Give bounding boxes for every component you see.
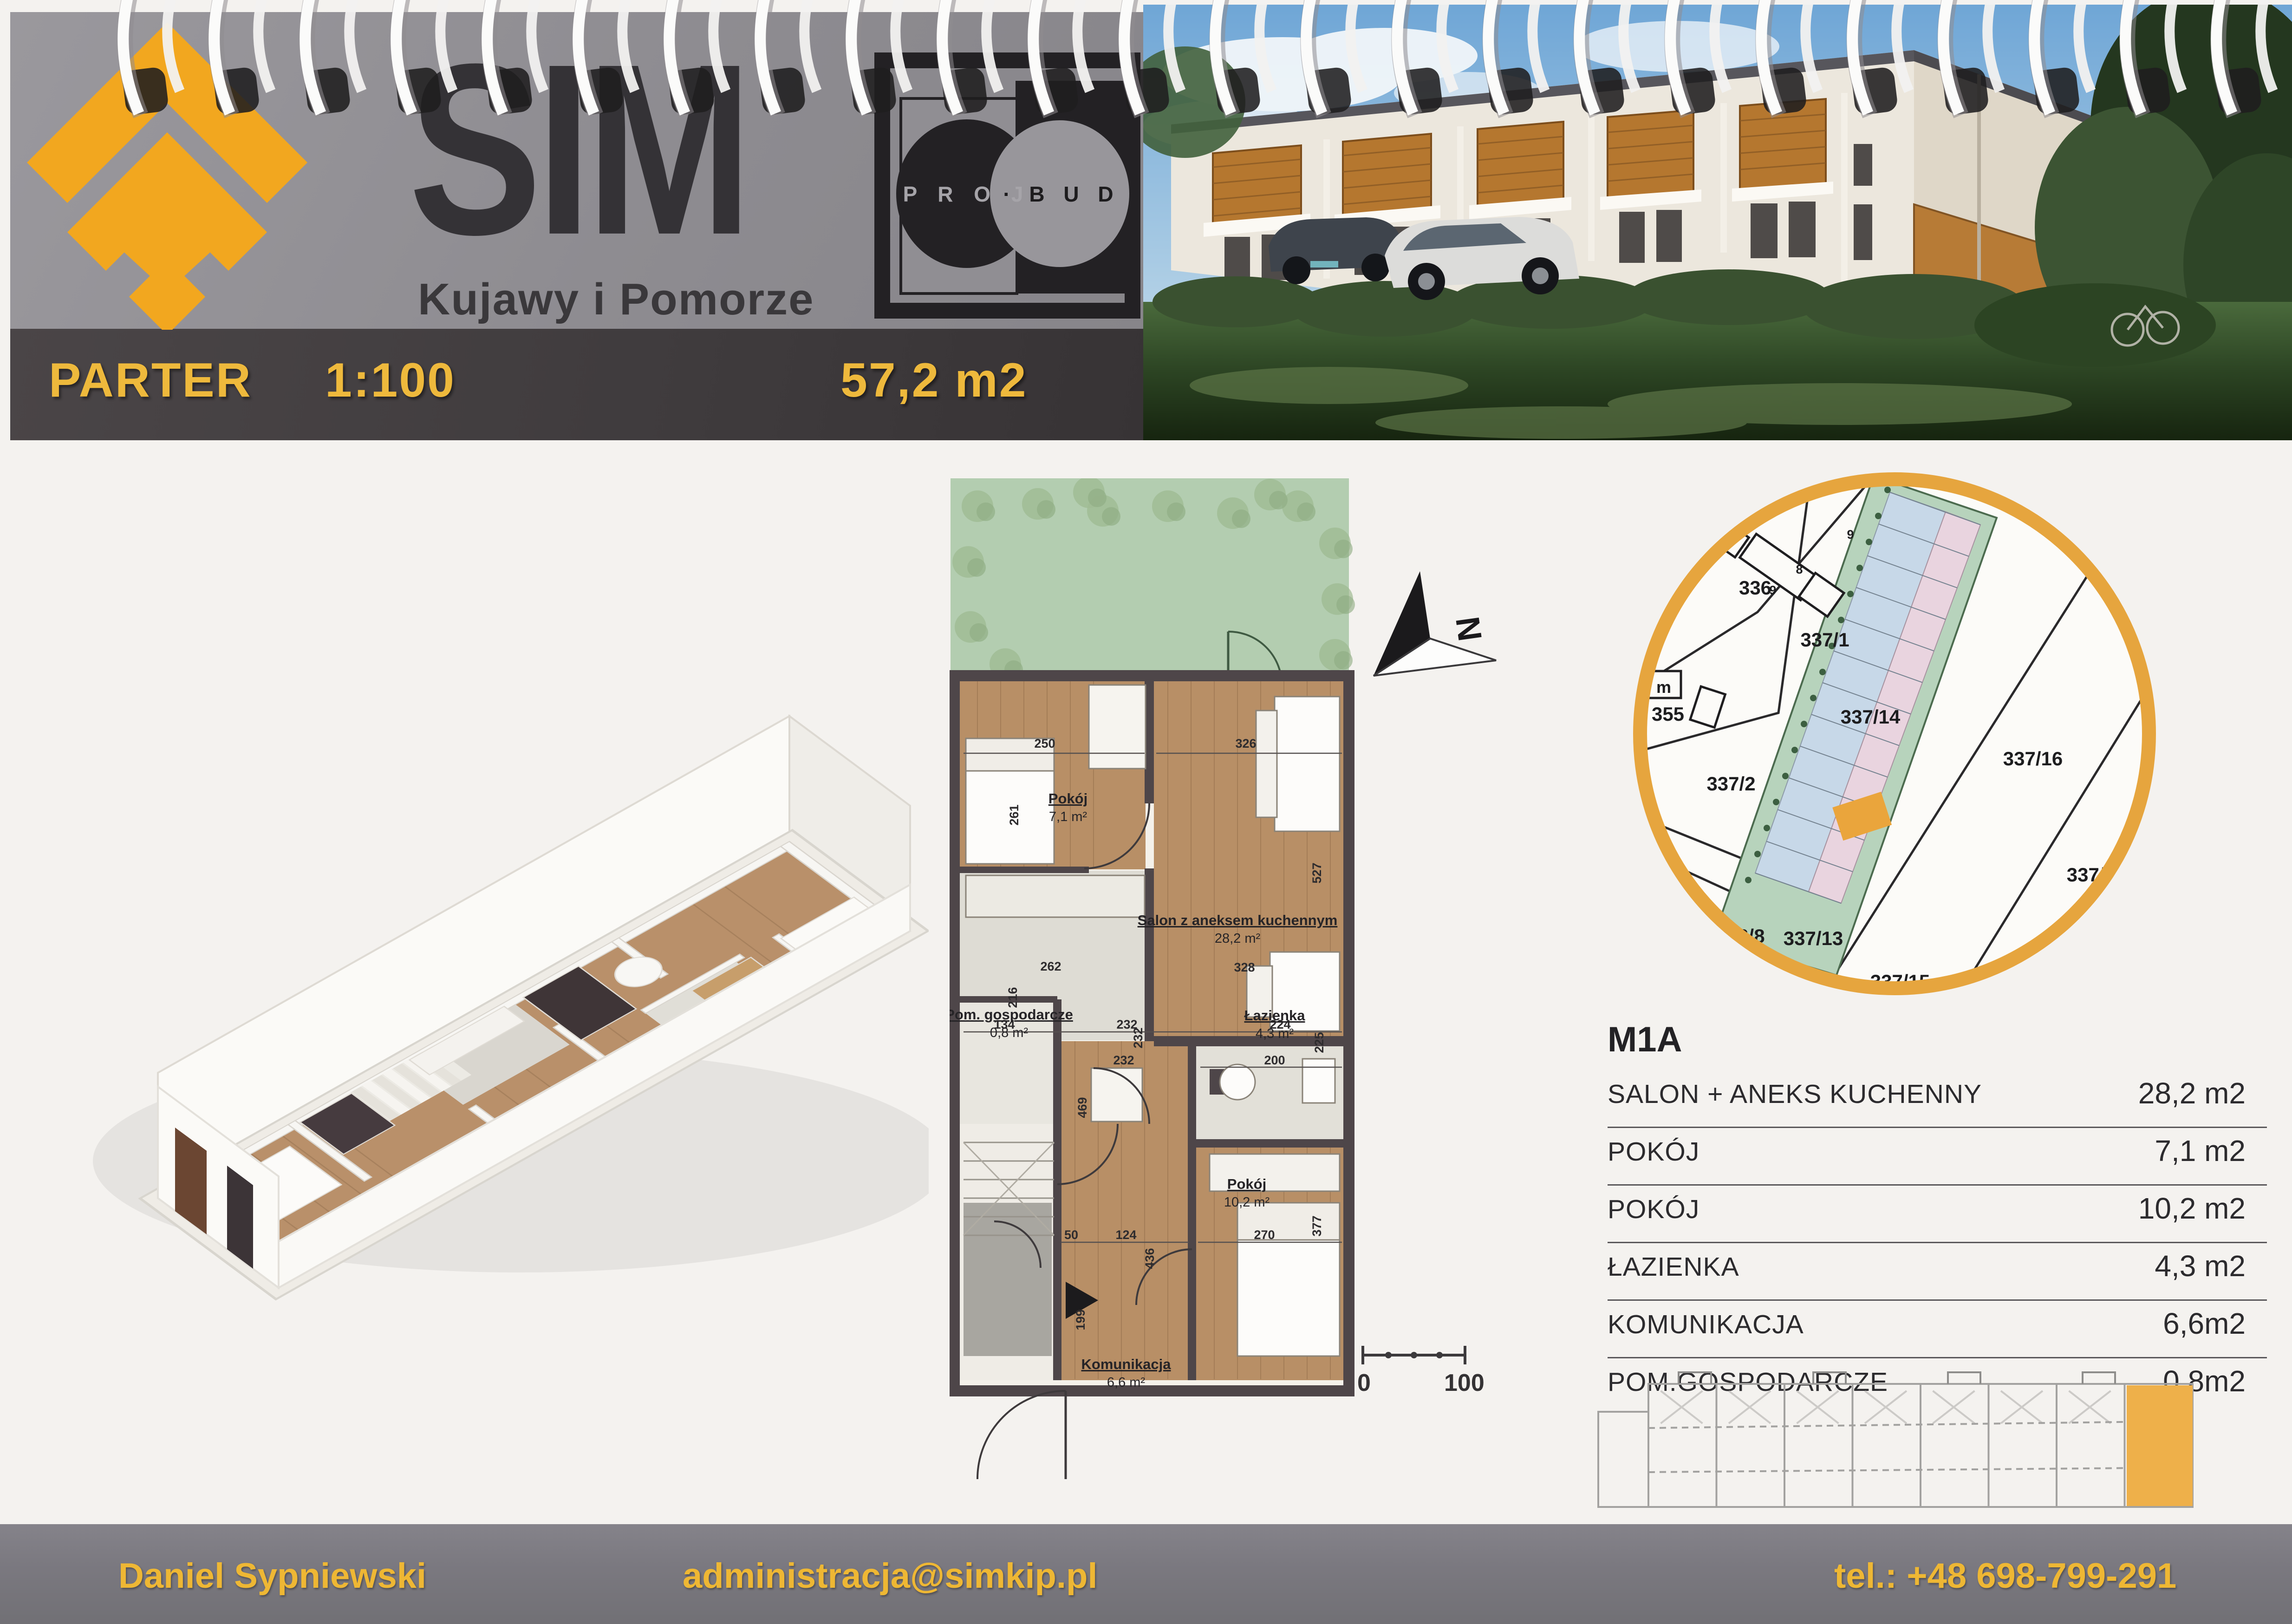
contact-email: administracja@simkip.pl <box>683 1556 1098 1596</box>
plan-scale: 1:100 <box>325 353 456 408</box>
svg-text:250: 250 <box>1034 737 1055 750</box>
unit-table-row: POKÓJ7,1 m2 <box>1608 1128 2267 1186</box>
contact-name: Daniel Sypniewski <box>118 1556 426 1596</box>
svg-text:Salon z aneksem kuchennym: Salon z aneksem kuchennym <box>1138 912 1338 928</box>
north-letter: N <box>1448 614 1488 644</box>
svg-text:337/13: 337/13 <box>1784 927 1843 949</box>
room-label: POKÓJ <box>1608 1194 1699 1225</box>
svg-text:232: 232 <box>1113 1053 1134 1067</box>
svg-text:262: 262 <box>1040 959 1061 973</box>
unit-table-row: ŁAZIENKA4,3 m2 <box>1608 1243 2267 1301</box>
svg-text:216: 216 <box>1006 987 1020 1008</box>
svg-text:10,2 m²: 10,2 m² <box>1224 1195 1270 1210</box>
svg-text:261: 261 <box>1007 804 1021 825</box>
site-map: 336337/1337/14337/16337/18337/2355566/83… <box>1621 460 2168 1008</box>
svg-text:225: 225 <box>1312 1032 1326 1053</box>
brand-tagline: Kujawy i Pomorze <box>418 274 814 325</box>
room-area: 4,3 m2 <box>2155 1249 2246 1283</box>
total-area: 57,2 m2 <box>840 353 1028 408</box>
svg-text:355: 355 <box>1652 703 1684 725</box>
apartment-3d-view <box>19 580 929 1440</box>
projbud-right-text: · B U D <box>1003 182 1120 206</box>
unit-table-row: KOMUNIKACJA6,6m2 <box>1608 1301 2267 1358</box>
svg-text:Komunikacja: Komunikacja <box>1081 1356 1172 1372</box>
unit-id: M1A <box>1608 1019 1682 1060</box>
room-area: 7,1 m2 <box>2155 1134 2246 1168</box>
svg-text:328: 328 <box>1234 960 1255 974</box>
contact-phone: tel.: +48 698-799-291 <box>1834 1556 2176 1596</box>
svg-text:200: 200 <box>1264 1053 1285 1067</box>
svg-text:124: 124 <box>1115 1228 1136 1242</box>
svg-text:9: 9 <box>1847 528 1854 541</box>
svg-text:7,1 m²: 7,1 m² <box>1049 809 1087 824</box>
room-label: ŁAZIENKA <box>1608 1252 1739 1282</box>
scale-end: 100 <box>1444 1370 1485 1396</box>
room-label: KOMUNIKACJA <box>1608 1309 1804 1340</box>
svg-text:337/2: 337/2 <box>1706 773 1755 795</box>
svg-text:337/16: 337/16 <box>2003 748 2063 770</box>
spiral-binding <box>0 0 2292 158</box>
svg-text:270: 270 <box>1254 1228 1275 1242</box>
svg-text:336: 336 <box>1739 577 1771 599</box>
north-arrow-icon: N <box>1361 557 1509 715</box>
svg-text:337/14: 337/14 <box>1841 706 1901 728</box>
svg-text:527: 527 <box>1310 862 1324 883</box>
unit-table-row: SALON + ANEKS KUCHENNY28,2 m2 <box>1608 1070 2267 1128</box>
svg-text:Pom. gospodarcze: Pom. gospodarcze <box>950 1006 1073 1023</box>
svg-text:4,3 m²: 4,3 m² <box>1256 1026 1294 1041</box>
svg-text:0,8 m²: 0,8 m² <box>990 1025 1029 1040</box>
svg-text:8: 8 <box>1796 562 1803 576</box>
room-label: POKÓJ <box>1608 1136 1699 1167</box>
room-area: 6,6m2 <box>2163 1306 2246 1341</box>
svg-text:326: 326 <box>1235 737 1256 750</box>
svg-text:436: 436 <box>1143 1248 1157 1269</box>
room-area: 28,2 m2 <box>2138 1076 2246 1110</box>
floor-title: PARTER <box>49 353 252 408</box>
scale-bar: 0 100 <box>1349 1337 1498 1402</box>
svg-text:377: 377 <box>1310 1215 1324 1236</box>
svg-text:50: 50 <box>1064 1228 1078 1242</box>
svg-text:199: 199 <box>1074 1309 1087 1330</box>
meter-box-label: m <box>1656 678 1671 697</box>
svg-text:28,2 m²: 28,2 m² <box>1215 931 1261 946</box>
room-area: 10,2 m2 <box>2138 1191 2246 1226</box>
svg-text:6,6 m²: 6,6 m² <box>1107 1375 1146 1390</box>
building-strip-diagram <box>1593 1363 2201 1523</box>
svg-text:Pokój: Pokój <box>1227 1176 1266 1192</box>
svg-text:Pokój: Pokój <box>1048 790 1087 807</box>
floor-plan-2d: 2502613265272622161342323282242322324695… <box>950 478 1358 1500</box>
unit-table-row: POKÓJ10,2 m2 <box>1608 1186 2267 1243</box>
room-label: SALON + ANEKS KUCHENNY <box>1608 1079 1982 1109</box>
svg-text:9: 9 <box>1769 583 1776 597</box>
strip-highlighted-unit <box>2127 1385 2193 1506</box>
scale-start: 0 <box>1357 1370 1371 1396</box>
svg-text:469: 469 <box>1075 1097 1089 1118</box>
svg-text:Łazienka: Łazienka <box>1244 1007 1306 1024</box>
svg-text:337/1: 337/1 <box>1800 629 1849 651</box>
svg-text:232: 232 <box>1131 1027 1145 1048</box>
brochure-page: SIM Kujawy i Pomorze P R O J · B U D PAR… <box>0 0 2292 1624</box>
